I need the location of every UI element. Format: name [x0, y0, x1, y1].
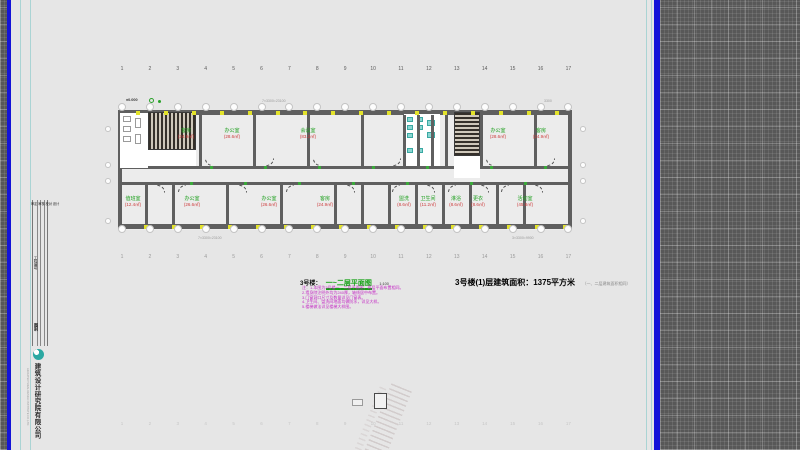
grid-number-bottom: 16	[538, 421, 543, 426]
room-area: (26.6㎡)	[184, 202, 200, 208]
company-subtitle: ARCHITECTURAL DESIGN INSTITUTE CO.,LTD.	[26, 368, 29, 446]
grid-bubble-side	[580, 218, 586, 224]
grid-bubble-top	[453, 103, 461, 111]
dim-top: 7×3300=23100	[262, 99, 286, 103]
partition-top	[199, 115, 202, 166]
overlay-box-2	[352, 399, 363, 406]
grid-bubble-side	[105, 126, 111, 132]
grid-number-bottom: 14	[482, 421, 487, 426]
grid-number-bottom: 15	[510, 421, 515, 426]
grid-number-mid: 15	[510, 254, 516, 260]
grid-bubble-top	[397, 103, 405, 111]
partition-top	[361, 115, 364, 166]
project-number-label: 工程编号	[34, 256, 39, 270]
grid-number-top: 13	[454, 66, 460, 72]
legend-dot-icon	[158, 100, 161, 103]
partition-top	[431, 115, 434, 166]
partition-bottom	[226, 185, 229, 224]
grid-number-mid: 11	[398, 254, 403, 260]
grid-bubble-bottom	[397, 225, 405, 233]
grid-bubble-bottom	[509, 225, 517, 233]
room-label: 卫生间(11.2㎡)	[420, 196, 436, 208]
grid-number-mid: 16	[538, 254, 544, 260]
window-tag-icon	[220, 111, 224, 115]
grid-number-bottom: 6	[260, 421, 263, 426]
stair-landing-1	[148, 150, 196, 166]
grid-number-bottom: 12	[426, 421, 431, 426]
grid-number-top: 5	[232, 66, 235, 72]
room-label: 办公室(26.6㎡)	[184, 196, 200, 208]
room-area: (45.8㎡)	[517, 202, 533, 208]
grid-bubble-bottom	[118, 225, 126, 233]
corridor-wall-lower	[122, 182, 568, 185]
overlay-box-1	[374, 393, 387, 409]
door-tag-icon	[490, 166, 493, 169]
corridor-wall-upper	[122, 166, 568, 169]
grid-number-top: 1	[121, 66, 124, 72]
note-line: 5.楼梯做法详见楼梯大样图。	[302, 305, 404, 310]
grid-number-bottom: 7	[288, 421, 291, 426]
grid-number-bottom: 5	[232, 421, 235, 426]
grid-number-bottom: 8	[316, 421, 319, 426]
room-area: (83.2㎡)	[300, 134, 316, 140]
grid-number-bottom: 11	[399, 421, 404, 426]
room-area: (8.6㎡)	[449, 202, 463, 208]
sheet-border-left	[7, 0, 11, 450]
room-label: 客房(24.9㎡)	[178, 128, 194, 140]
grid-bubble-side	[105, 178, 111, 184]
door-tag-icon	[352, 182, 355, 185]
grid-bubble-top	[174, 103, 182, 111]
grid-number-top: 12	[426, 66, 432, 72]
desk-texture-left	[0, 0, 7, 450]
grid-number-mid: 17	[566, 254, 572, 260]
door-tag-icon	[406, 182, 409, 185]
grid-bubble-side	[580, 126, 586, 132]
grid-number-mid: 8	[316, 254, 319, 260]
grid-bubble-bottom	[537, 225, 545, 233]
grid-number-bottom: 9	[344, 421, 347, 426]
grid-number-top: 11	[398, 66, 403, 72]
window-tag-icon	[331, 111, 335, 115]
grid-number-mid: 12	[426, 254, 432, 260]
frame-line-3	[646, 0, 647, 450]
room-area: (24.9㎡)	[317, 202, 333, 208]
window-tag-icon	[192, 111, 196, 115]
room-label: 淋浴(8.6㎡)	[449, 196, 463, 208]
floor-plan-canvas	[116, 106, 574, 232]
grid-bubble-side	[580, 178, 586, 184]
grid-number-top: 14	[482, 66, 488, 72]
grid-number-top: 16	[538, 66, 544, 72]
grid-bubble-side	[105, 162, 111, 168]
door-tag-icon	[544, 166, 547, 169]
room-area: (24.9㎡)	[178, 134, 194, 140]
room-area: (8.6㎡)	[471, 202, 485, 208]
dim-top-right: 3300	[544, 99, 552, 103]
grid-number-bottom: 10	[371, 421, 376, 426]
window-tag-icon	[527, 111, 531, 115]
grid-number-bottom: 4	[204, 421, 207, 426]
grid-number-top: 9	[344, 66, 347, 72]
grid-number-bottom: 3	[177, 421, 180, 426]
partition-top	[445, 115, 448, 166]
door-tag-icon	[372, 166, 375, 169]
grid-number-mid: 2	[149, 254, 152, 260]
window-tag-icon	[136, 111, 140, 115]
room-label: 值班室(12.4㎡)	[125, 196, 141, 208]
grid-bubble-top	[509, 103, 517, 111]
grid-number-mid: 4	[204, 254, 207, 260]
room-area: (8.6㎡)	[397, 202, 411, 208]
cad-viewport[interactable]: 审定 审核 校对 设计 工程编号 图别 建筑设计研究院有限公司 ARCHITEC…	[0, 0, 800, 450]
window-tag-icon	[443, 111, 447, 115]
grid-bubble-top	[481, 103, 489, 111]
grid-number-mid: 10	[370, 254, 376, 260]
room-label: 会议室(83.2㎡)	[300, 128, 316, 140]
grid-number-top: 2	[149, 66, 152, 72]
grid-number-bottom: 2	[149, 421, 152, 426]
grid-number-top: 3	[176, 66, 179, 72]
grid-bubble-bottom	[230, 225, 238, 233]
room-area: (28.6㎡)	[490, 134, 506, 140]
grid-bubble-top	[230, 103, 238, 111]
grid-number-mid: 1	[121, 254, 124, 260]
wall-right	[568, 110, 572, 229]
room-label: 客房(24.9㎡)	[533, 128, 549, 140]
room-area: (24.9㎡)	[533, 134, 549, 140]
window-tag-icon	[164, 111, 168, 115]
partition-top	[417, 115, 420, 166]
grid-bubble-side	[105, 218, 111, 224]
grid-number-mid: 14	[482, 254, 488, 260]
room-area: (28.6㎡)	[224, 134, 240, 140]
grid-bubble-top	[425, 103, 433, 111]
door-tag-icon	[318, 166, 321, 169]
area-statement: 3号楼(1)层建筑面积：1375平方米	[455, 278, 575, 287]
partition-top	[307, 115, 310, 166]
grid-bubble-top	[537, 103, 545, 111]
room-label: 客房(24.9㎡)	[317, 196, 333, 208]
grid-number-mid: 5	[232, 254, 235, 260]
door-tag-icon	[426, 166, 429, 169]
door-tag-icon	[264, 166, 267, 169]
room-area: (12.4㎡)	[125, 202, 141, 208]
room-label: 盥洗(8.6㎡)	[397, 196, 411, 208]
grid-number-top: 6	[260, 66, 263, 72]
room-label: 办公室(26.6㎡)	[261, 196, 277, 208]
window-tag-icon	[248, 111, 252, 115]
dim-bottom-left: 7×3300=23100	[198, 236, 222, 240]
grid-number-mid: 9	[344, 254, 347, 260]
sheet-border-right	[654, 0, 660, 450]
grid-bubble-top	[146, 103, 154, 111]
window-tag-icon	[499, 111, 503, 115]
door-tag-icon	[524, 182, 527, 185]
partition-bottom	[172, 185, 175, 224]
room-area: (11.2㎡)	[420, 202, 436, 208]
partition-bottom	[145, 185, 148, 224]
window-tag-icon	[555, 111, 559, 115]
grid-number-mid: 13	[454, 254, 460, 260]
desk-texture-right	[660, 0, 800, 450]
grid-bubble-bottom	[258, 225, 266, 233]
room-label: 活动室(45.8㎡)	[517, 196, 533, 208]
frame-line-4	[651, 0, 652, 450]
grid-bubble-bottom	[425, 225, 433, 233]
grid-number-top: 10	[370, 66, 376, 72]
partition-top	[534, 115, 537, 166]
grid-number-top: 7	[288, 66, 291, 72]
window-tag-icon	[303, 111, 307, 115]
grid-bubble-bottom	[202, 225, 210, 233]
partition-bottom	[280, 185, 283, 224]
door-tag-icon	[470, 182, 473, 185]
dim-bottom-right: 3×3300=9900	[512, 236, 534, 240]
room-label: 更衣(8.6㎡)	[471, 196, 485, 208]
stair-flight-2	[454, 112, 480, 156]
grid-number-top: 17	[566, 66, 572, 72]
grid-number-top: 4	[204, 66, 207, 72]
partition-bottom	[334, 185, 337, 224]
door-tag-icon	[210, 166, 213, 169]
partition-top	[403, 115, 406, 166]
window-tag-icon	[276, 111, 280, 115]
partition-bottom	[388, 185, 391, 224]
company-name: 建筑设计研究院有限公司	[31, 363, 41, 449]
grid-bubble-bottom	[174, 225, 182, 233]
grid-number-mid: 3	[176, 254, 179, 260]
room-label: 办公室(28.6㎡)	[224, 128, 240, 140]
grid-bubble-top	[202, 103, 210, 111]
grid-number-mid: 6	[260, 254, 263, 260]
grid-number-mid: 7	[288, 254, 291, 260]
grid-bubble-bottom	[481, 225, 489, 233]
grid-number-bottom: 17	[566, 421, 571, 426]
grid-bubble-top	[258, 103, 266, 111]
partition-bottom	[442, 185, 445, 224]
partition-bottom	[415, 185, 418, 224]
window-tag-icon	[359, 111, 363, 115]
area-caption: 3号楼(1)层建筑面积：1375平方米 （一、二层建筑面积相同）	[455, 272, 630, 290]
company-logo-icon	[33, 349, 44, 360]
partition-top	[480, 115, 483, 166]
door-tag-icon	[298, 182, 301, 185]
grid-number-top: 15	[510, 66, 516, 72]
grid-bubble-top	[118, 103, 126, 111]
area-note: （一、二层建筑面积相同）	[582, 281, 630, 286]
sheet-type-label: 图别	[33, 323, 39, 331]
grid-bubble-bottom	[453, 225, 461, 233]
partition-top	[253, 115, 256, 166]
window-tag-icon	[415, 111, 419, 115]
room-area: (26.6㎡)	[261, 202, 277, 208]
notes-block: 注：1.本图为3号楼一、二层平面图，两层平面布置相同。2.墙身除注明外均为240…	[302, 286, 404, 310]
window-tag-icon	[387, 111, 391, 115]
frame-line-1	[20, 0, 21, 450]
grid-bubble-bottom	[146, 225, 154, 233]
grid-bubble-side	[580, 162, 586, 168]
room-label: 办公室(28.6㎡)	[490, 128, 506, 140]
door-tag-icon	[244, 182, 247, 185]
door-tag-icon	[190, 182, 193, 185]
grid-number-bottom: 13	[454, 421, 459, 426]
grid-number-top: 8	[316, 66, 319, 72]
window-tag-icon	[471, 111, 475, 115]
partition-bottom	[361, 185, 364, 224]
stair-landing-2	[454, 156, 480, 178]
signoff-row-label: 审定 审核 校对 设计	[31, 201, 61, 206]
level-mark: ±0.000	[126, 98, 138, 102]
grid-number-bottom: 1	[121, 421, 124, 426]
partition-bottom	[496, 185, 499, 224]
